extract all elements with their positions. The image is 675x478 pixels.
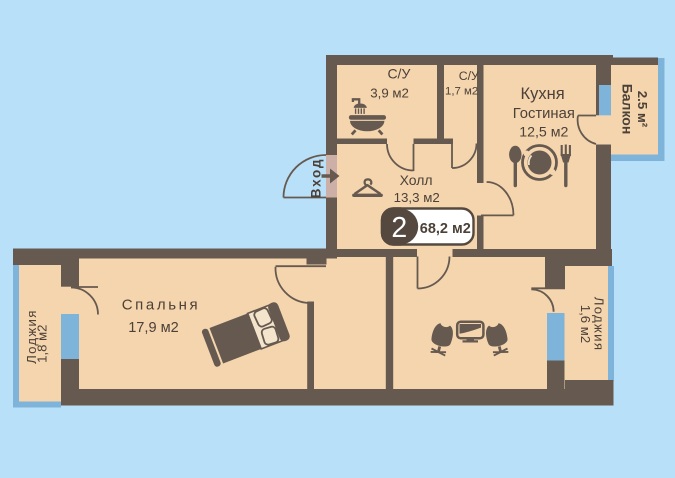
svg-text:Гостиная: Гостиная [513, 106, 575, 122]
svg-text:Кухня: Кухня [521, 85, 565, 103]
svg-text:Холл: Холл [400, 172, 433, 188]
svg-text:Вход: Вход [309, 158, 324, 199]
svg-text:1,8 м2: 1,8 м2 [35, 324, 50, 362]
svg-text:1,6 м2: 1,6 м2 [578, 305, 593, 343]
svg-text:С/У: С/У [387, 66, 410, 82]
svg-text:1,7 м2: 1,7 м2 [445, 86, 478, 98]
svg-text:68,2 м2: 68,2 м2 [420, 221, 471, 237]
svg-text:3,9 м2: 3,9 м2 [370, 86, 409, 101]
svg-text:С/У: С/У [459, 69, 479, 83]
svg-text:17,9 м2: 17,9 м2 [128, 320, 179, 336]
svg-text:Балкон: Балкон [619, 84, 635, 135]
svg-text:12,5 м2: 12,5 м2 [519, 125, 568, 141]
svg-text:13,3 м2: 13,3 м2 [394, 190, 440, 205]
svg-text:2: 2 [391, 212, 407, 244]
svg-text:2.5 м²: 2.5 м² [635, 91, 650, 128]
svg-text:Спальня: Спальня [122, 297, 200, 314]
